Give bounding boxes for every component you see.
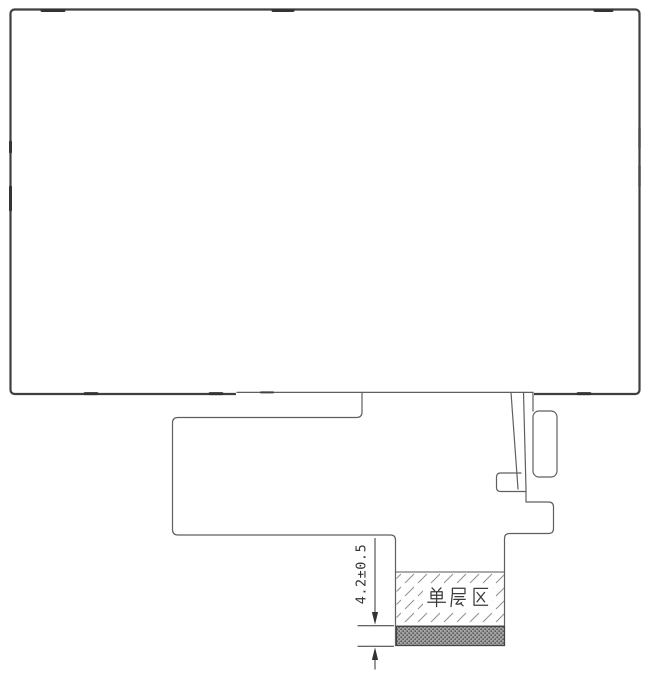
dimension-arrow-up	[372, 647, 378, 660]
panel-outline	[11, 10, 640, 395]
fpc-right-step-outline	[505, 489, 554, 646]
fpc-cutout-window	[533, 411, 557, 477]
strip-hook-tab	[497, 473, 527, 492]
fpc-main-body-outline	[173, 392, 396, 645]
strip-left-line	[511, 392, 518, 489]
dimension-annotation: 4.2±0.5	[354, 538, 395, 670]
dimension-text: 4.2±0.5	[354, 544, 370, 604]
panel-outline-group	[11, 10, 640, 397]
stiffener-strip	[397, 627, 505, 646]
dimension-arrow-down	[372, 612, 378, 625]
strip-right-line	[524, 392, 527, 489]
technical-drawing-canvas: 4.2±0.5	[0, 0, 650, 678]
fpc-outline-drawing: 4.2±0.5	[0, 0, 650, 678]
single-layer-region	[397, 573, 505, 626]
